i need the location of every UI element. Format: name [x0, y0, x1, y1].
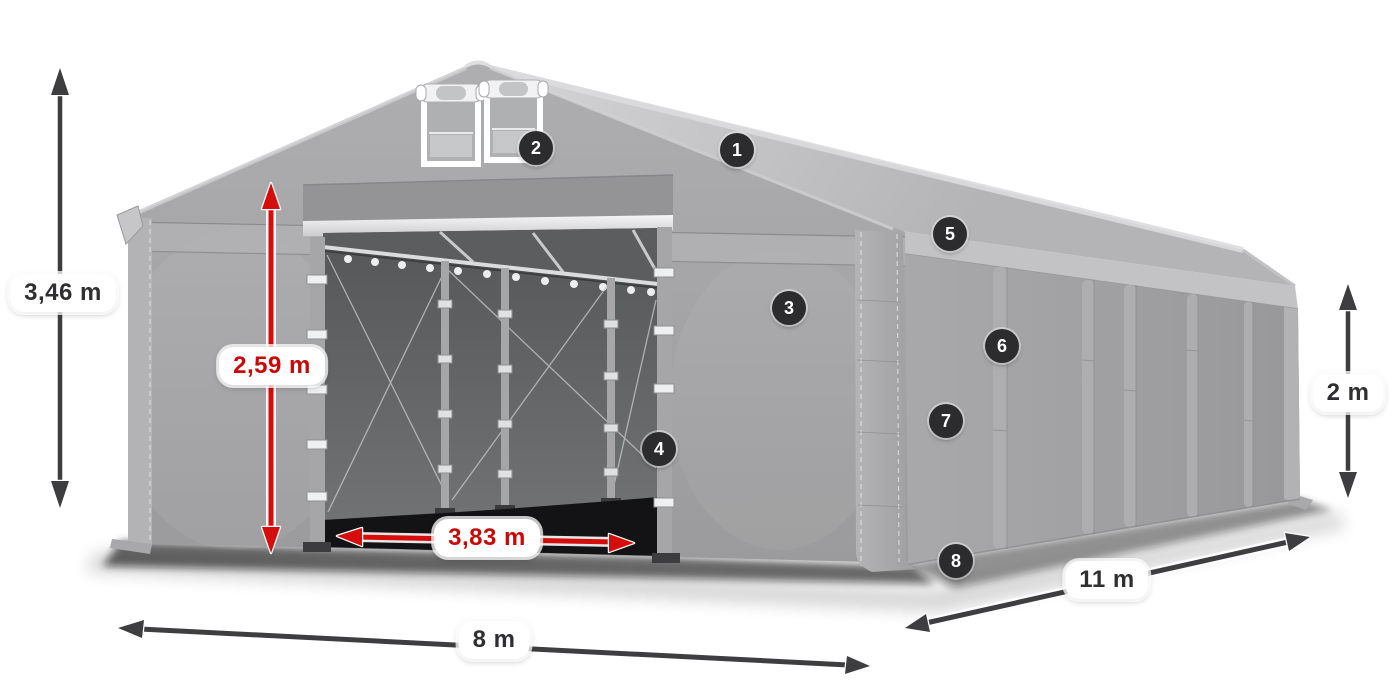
- feature-badge-7: 7: [929, 404, 963, 438]
- door-width-label: 3,83 m: [434, 519, 540, 557]
- front-width-label: 8 m: [459, 621, 530, 659]
- door-height-label: 2,59 m: [219, 347, 325, 385]
- side-length-label: 11 m: [1065, 561, 1148, 599]
- feature-badge-3: 3: [772, 291, 806, 325]
- gable-window-left: [416, 84, 486, 164]
- feature-badge-5: 5: [933, 217, 967, 251]
- feature-badge-4: 4: [642, 432, 676, 466]
- side-height-label: 2 m: [1313, 374, 1384, 412]
- door-opening: [318, 220, 668, 565]
- tent-illustration: [0, 0, 1400, 700]
- feature-badge-2: 2: [519, 131, 553, 165]
- feature-badge-6: 6: [985, 329, 1019, 363]
- total-height-label: 3,46 m: [10, 274, 116, 312]
- feature-badge-8: 8: [939, 544, 973, 578]
- feature-badge-1: 1: [720, 133, 754, 167]
- tent-dimension-diagram: 3,46 m 2,59 m 3,83 m 8 m 11 m 2 m 1 2 3 …: [0, 0, 1400, 700]
- door-header: [303, 175, 673, 237]
